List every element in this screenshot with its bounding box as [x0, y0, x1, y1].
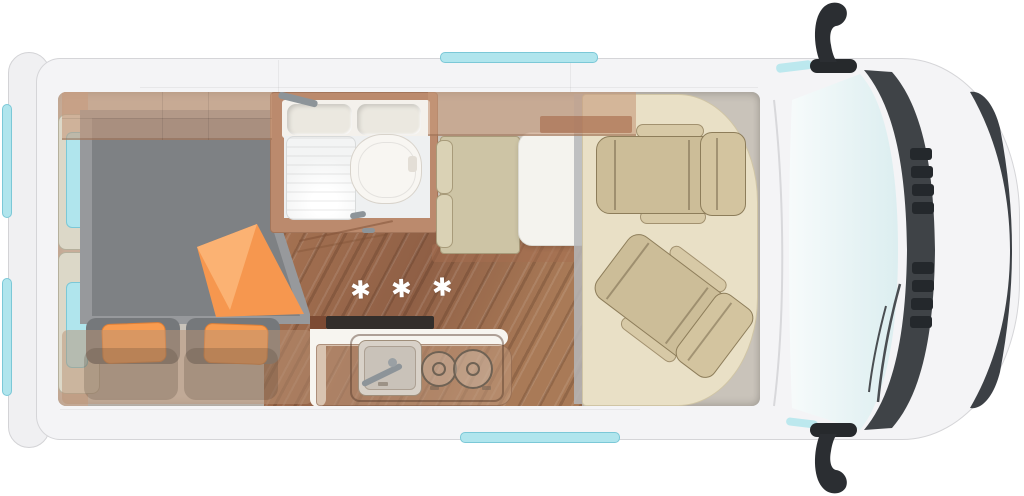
- kitchen-counter-wood: [310, 316, 326, 329]
- side-mirror-left: [810, 3, 857, 73]
- toilet-hinge: [408, 156, 417, 172]
- sink-faucet-base: [388, 358, 397, 367]
- unit-latch-3: [482, 386, 491, 390]
- cabinet-seam: [162, 92, 163, 140]
- hob-burner-right-center: [466, 362, 480, 376]
- roof-seam-vertical-1: [278, 60, 279, 92]
- seat-seam: [716, 138, 718, 210]
- cabinet-seam-3: [62, 118, 272, 119]
- unit-latch-2: [430, 386, 439, 390]
- campervan-floorplan-top-view: ✱ ✱ ✱: [0, 0, 1024, 496]
- washbasin-left: [287, 104, 352, 135]
- hob-burner-left-center: [432, 362, 446, 376]
- roof-seam-vertical-2: [570, 60, 571, 92]
- overhead-cabinet-rear: [62, 92, 272, 140]
- hob-glass-cover: [326, 316, 434, 329]
- unit-latch-1: [378, 382, 388, 386]
- seat-backrest: [700, 132, 746, 216]
- rear-door-window-strip-bottom: [2, 278, 12, 396]
- seat-seam: [614, 140, 616, 210]
- bed-base-seat-left: [84, 348, 178, 400]
- heating-marker: ✱ ✱ ✱: [350, 272, 460, 305]
- bench-backrest-bottom: [436, 194, 453, 248]
- roof-seam-bottom: [60, 409, 640, 410]
- washbasin-right: [357, 104, 421, 135]
- bed-base-seat-right: [184, 348, 278, 400]
- rear-door-window-strip-top: [2, 104, 12, 218]
- side-mirror-right: [810, 423, 857, 493]
- hood-trim-arc: [970, 92, 1012, 408]
- shower-tray: [286, 136, 356, 220]
- roof-seam-top: [140, 87, 758, 88]
- swivel-seat-front: [596, 124, 746, 224]
- cab-front-graphics: [760, 0, 1024, 496]
- bed-base-front: [62, 330, 312, 404]
- side-window-strip-top: [440, 52, 598, 63]
- side-window-strip-bottom: [460, 432, 620, 443]
- cab-window-sliver-top: [776, 60, 813, 73]
- dashboard-edge: [774, 100, 782, 406]
- seat-seam: [688, 140, 690, 210]
- bench-backrest-top: [436, 140, 453, 194]
- cabinet-seam-2: [208, 92, 209, 140]
- interior-cutaway: ✱ ✱ ✱: [58, 92, 760, 406]
- bathroom-door-handle-2: [362, 228, 375, 233]
